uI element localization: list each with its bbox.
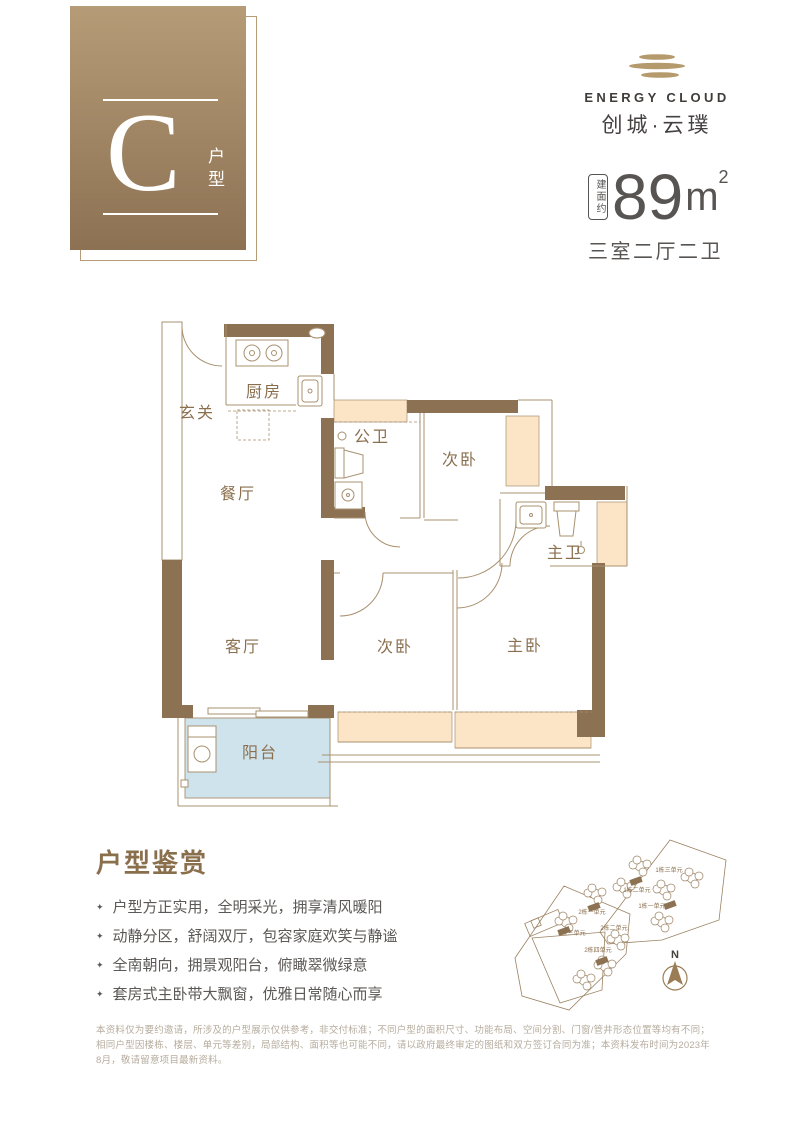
unit-type-label: 户型 (201, 147, 227, 193)
svg-text:1栋二单元: 1栋二单元 (623, 886, 650, 894)
fridge-dashed (237, 410, 269, 440)
area-unit: m (685, 175, 718, 220)
siteplan-plots (515, 840, 726, 1010)
room-label-living: 客厅 (225, 638, 261, 656)
disclaimer-text: 本资料仅为要约邀请，所涉及的户型展示仅供参考，非交付标准；不同户型的面积尺寸、功… (96, 1023, 710, 1068)
svg-text:2栋一单元: 2栋一单元 (578, 908, 605, 916)
feature-item: ✦全南朝向，拥景观阳台，俯瞰翠微绿意 (96, 952, 496, 981)
siteplan-drawing: 1栋三单元 1栋二单元 1栋一单元 2栋一单元 2栋二单元 2栋三单元 2栋四单… (512, 830, 734, 1018)
unit-letter: C (106, 105, 198, 205)
area-value: 89 (612, 168, 683, 226)
feature-item: ✦套房式主卧带大飘窗，优雅日常随心而享 (96, 981, 496, 1010)
bay-window-master (455, 712, 591, 748)
room-label-master-bath: 主卫 (547, 544, 583, 562)
star-bullet-icon: ✦ (96, 989, 104, 999)
features-list: ✦户型方正实用，全明采光，拥享清风暖阳 ✦动静分区，舒阔双厅，包容家庭欢笑与静谧… (96, 894, 496, 1010)
guest-bath-toilet (335, 448, 363, 478)
build-area-tag: 建面约 (588, 174, 608, 220)
feature-item: ✦户型方正实用，全明采光，拥享清风暖阳 (96, 894, 496, 923)
cloud-logo-icon (597, 52, 717, 82)
compass-icon: N (663, 949, 687, 990)
room-label-balcony: 阳台 (242, 744, 278, 762)
brand-logo: ENERGY CLOUD 创城·云璞 (557, 52, 757, 139)
star-bullet-icon: ✦ (96, 902, 104, 912)
features-section: 户型鉴赏 ✦户型方正实用，全明采光，拥享清风暖阳 ✦动静分区，舒阔双厅，包容家庭… (96, 843, 496, 1010)
star-bullet-icon: ✦ (96, 960, 104, 970)
area-info: 建面约 89 m 2 三室二厅二卫 (588, 168, 738, 264)
room-label-bedroom-top: 次卧 (442, 451, 478, 469)
room-label-dining: 餐厅 (220, 485, 256, 503)
kitchen-sink (298, 376, 322, 406)
svg-text:1栋三单元: 1栋三单元 (655, 866, 682, 874)
unit-badge: C 户型 (70, 6, 246, 250)
room-layout-text: 三室二厅二卫 (588, 235, 738, 264)
guest-bath-sink (335, 482, 362, 509)
balcony-sliding-door (208, 708, 308, 717)
window-above-guest-bath (334, 400, 407, 422)
svg-text:2栋三单元: 2栋三单元 (558, 929, 585, 937)
bay-window-bedroom-mid (338, 712, 452, 742)
svg-text:N: N (671, 949, 679, 961)
svg-text:2栋四单元: 2栋四单元 (584, 946, 611, 954)
floorplan-drawing: 玄关 厨房 公卫 次卧 餐厅 主卫 客厅 次卧 主卧 阳台 (148, 310, 648, 810)
svg-text:1栋一单元: 1栋一单元 (638, 902, 665, 910)
room-label-kitchen: 厨房 (246, 383, 282, 401)
room-label-master-bedroom: 主卧 (507, 637, 543, 655)
window-bedroom-top (506, 416, 539, 486)
svg-text:2栋二单元: 2栋二单元 (600, 924, 627, 932)
door-arcs (182, 326, 550, 616)
feature-item: ✦动静分区，舒阔双厅，包容家庭欢笑与静谧 (96, 923, 496, 952)
area-unit-sup: 2 (719, 167, 729, 188)
walls (162, 324, 625, 737)
room-label-entry: 玄关 (179, 404, 215, 422)
room-label-bedroom-mid: 次卧 (377, 638, 413, 656)
brochure-page: C 户型 ENERGY CLOUD 创城·云璞 建面约 89 m 2 三室二厅二… (0, 0, 800, 1131)
master-bath-sink (516, 502, 546, 528)
brand-name-en: ENERGY CLOUD (557, 90, 757, 105)
star-bullet-icon: ✦ (96, 931, 104, 941)
badge-divider-bottom (103, 213, 218, 215)
guest-bath-drain (338, 432, 346, 440)
window-master-bath (597, 502, 627, 566)
entry-corridor (162, 322, 182, 560)
room-label-guest-bath: 公卫 (354, 429, 390, 446)
brand-name-cn: 创城·云璞 (557, 109, 757, 139)
features-title: 户型鉴赏 (96, 843, 496, 880)
